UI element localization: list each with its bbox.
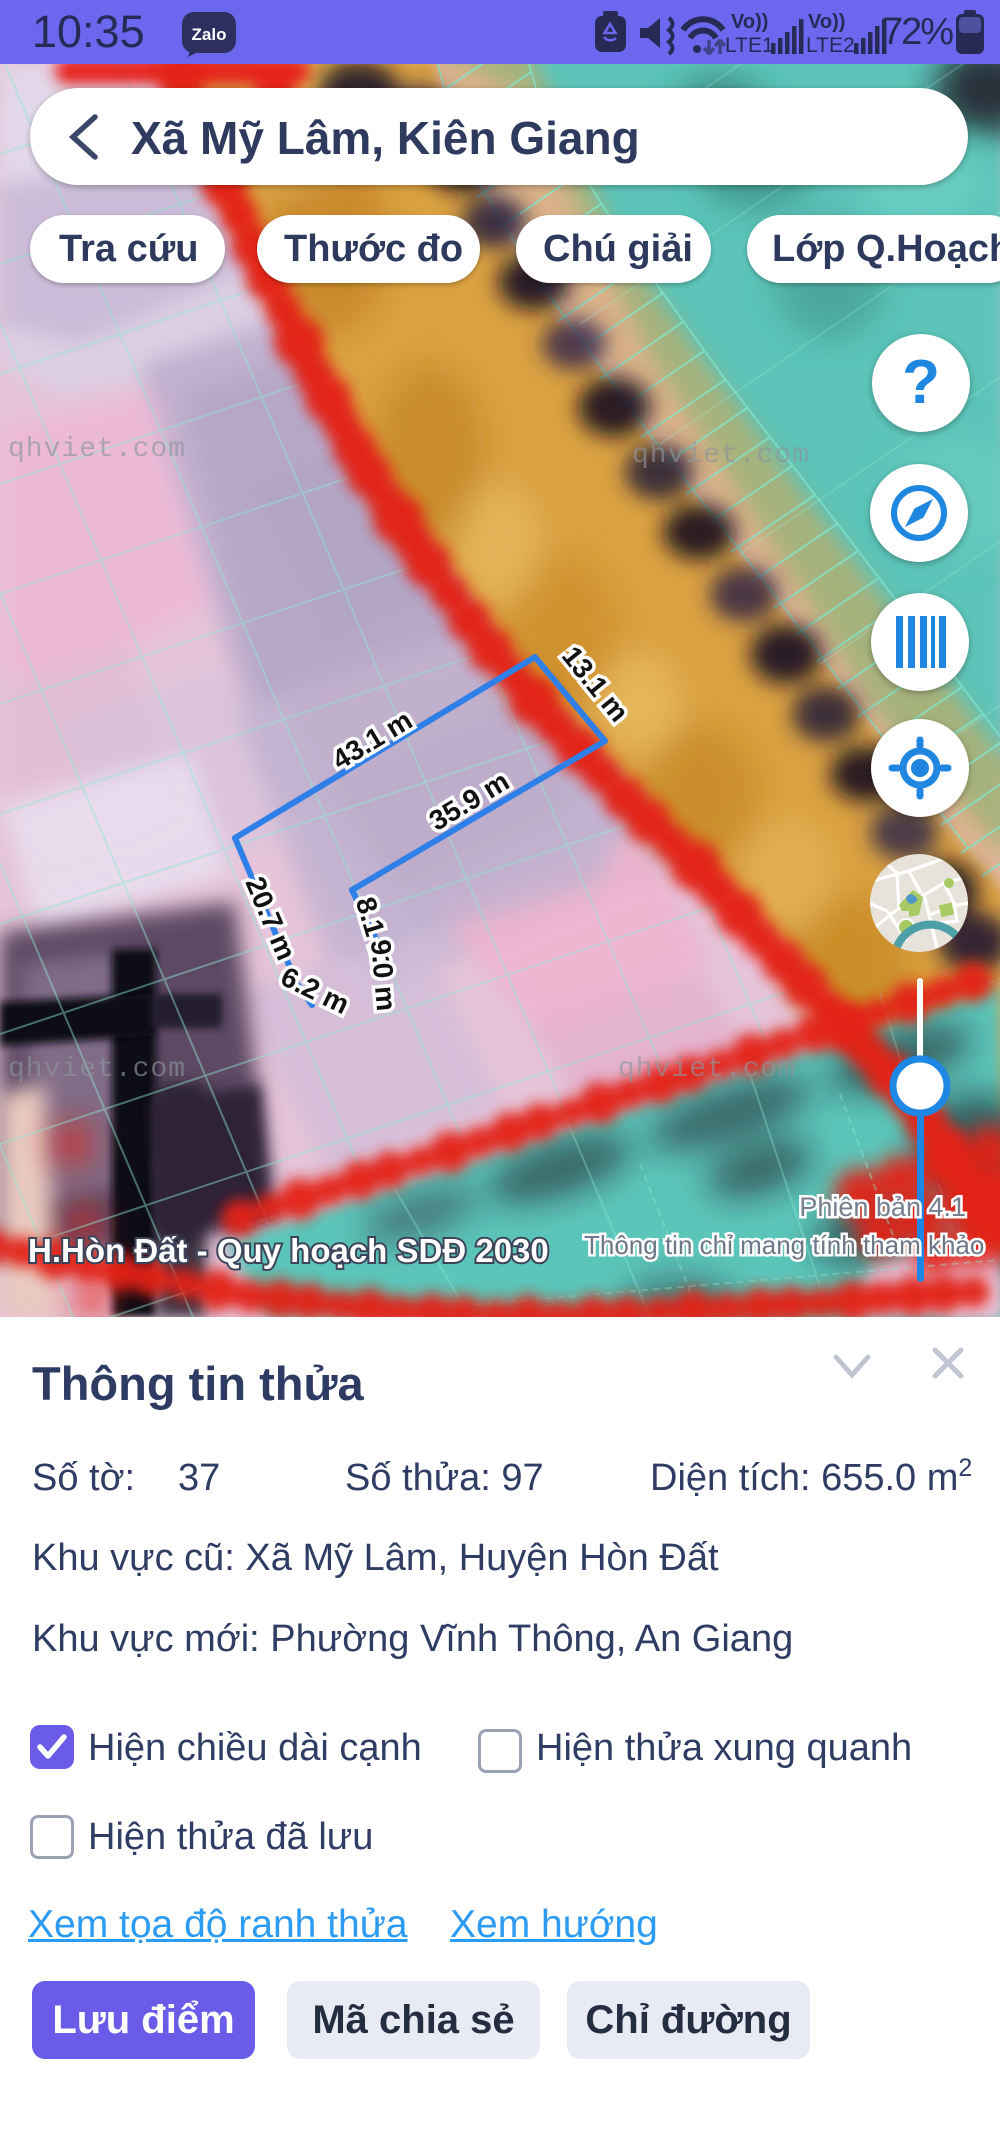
svg-text:Thông tin chỉ mang tính tham k: Thông tin chỉ mang tính tham khảo <box>584 1230 984 1260</box>
svg-text:H.Hòn Đất - Quy hoạch SDĐ 2030: H.Hòn Đất - Quy hoạch SDĐ 2030 <box>28 1232 549 1269</box>
svg-text:Vo)): Vo)) <box>808 11 845 33</box>
svg-text:Vo)): Vo)) <box>731 11 768 33</box>
svg-text:qhviet.com: qhviet.com <box>632 440 810 471</box>
svg-text:qhviet.com: qhviet.com <box>8 1054 186 1085</box>
svg-text:Phiên bản 4.1: Phiên bản 4.1 <box>799 1192 966 1222</box>
svg-text:LTE2: LTE2 <box>806 34 855 57</box>
svg-text:qhviet.com: qhviet.com <box>8 434 186 465</box>
svg-text:Zalo: Zalo <box>192 25 227 44</box>
svg-text:9.0 m: 9.0 m <box>365 938 402 1012</box>
svg-text:qhviet.com: qhviet.com <box>618 1054 796 1085</box>
svg-text:LTE1: LTE1 <box>725 34 774 57</box>
